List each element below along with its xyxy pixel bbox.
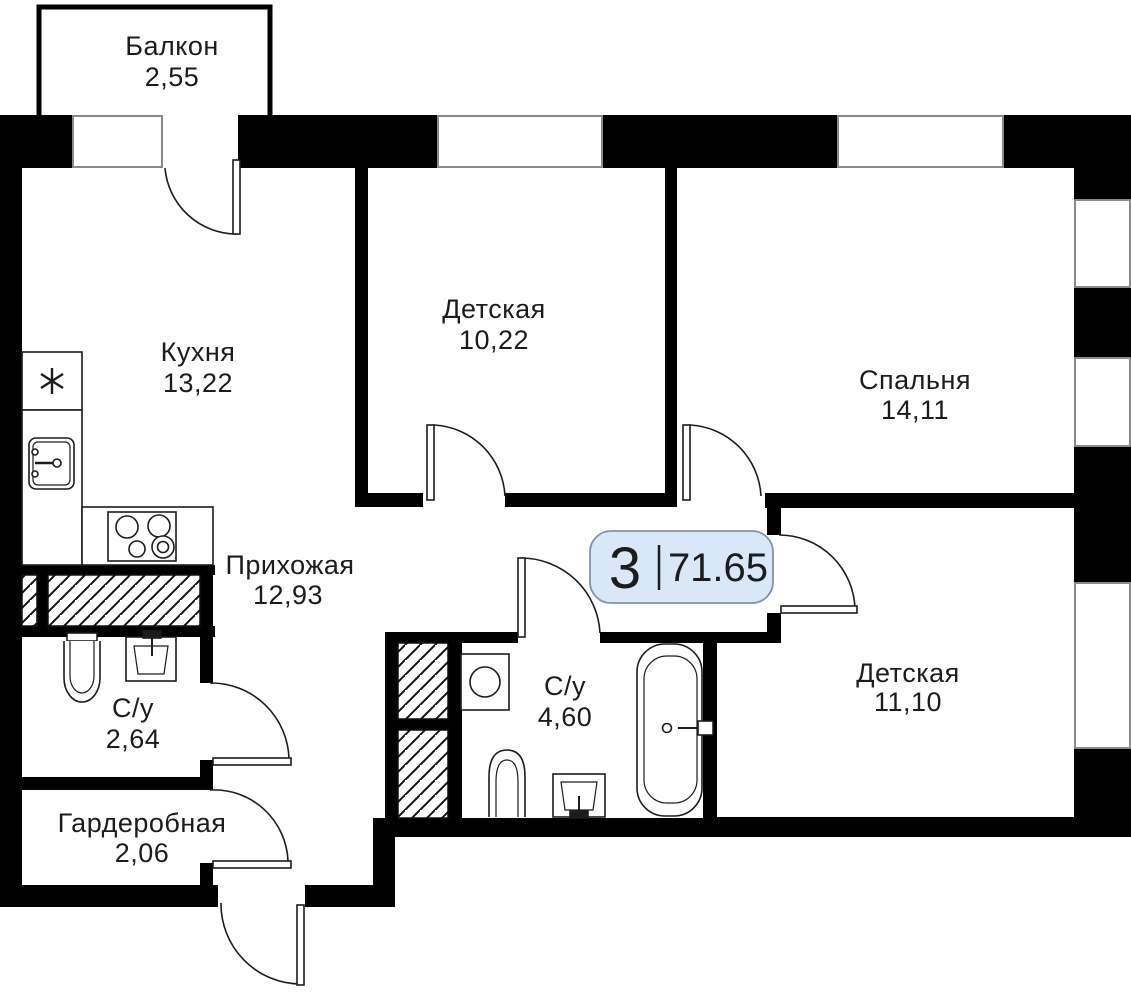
window-children-room-2: [1075, 583, 1130, 748]
label-bathroom: С/у: [544, 671, 586, 701]
badge-total-area: 71.65: [668, 546, 768, 590]
door-arc-wc: [210, 683, 289, 759]
badge-rooms-count: 3: [609, 536, 641, 601]
door-leaf-wardrobe: [213, 861, 291, 868]
area-children-1: 10,22: [459, 325, 529, 355]
area-children-2: 11,10: [874, 687, 942, 717]
window-bedroom-1: [838, 116, 1003, 167]
washbasin-icon-2: [553, 774, 605, 818]
area-hallway: 12,93: [253, 580, 323, 610]
door-arc-children-1: [434, 425, 505, 496]
floor-plan: Балкон 2,55 Кухня 13,22 Детская 10,22 Сп…: [0, 0, 1131, 1000]
bathtub-icon: [637, 644, 713, 816]
door-leaf-wc: [213, 758, 291, 765]
window-children-room-1: [438, 116, 602, 167]
window-bedroom-2: [1075, 200, 1130, 287]
window-bedroom-3: [1075, 358, 1130, 446]
door-leaf-children-2: [781, 606, 857, 613]
area-bedroom: 14,11: [881, 395, 949, 425]
label-bedroom: Спальня: [859, 365, 971, 395]
kitchen-sink-icon: [29, 438, 74, 489]
wc-fixtures: [64, 631, 176, 702]
toilet-icon-2: [489, 750, 525, 817]
area-kitchen: 13,22: [163, 368, 233, 398]
door-leaf-children-1: [427, 425, 434, 500]
windows: [73, 116, 1130, 748]
toilet-icon: [64, 633, 100, 702]
area-balcony: 2,55: [145, 62, 200, 92]
door-arc-entrance: [221, 903, 300, 984]
window-balcony: [73, 116, 162, 167]
label-hallway: Прихожая: [225, 550, 354, 580]
area-bathroom: 4,60: [538, 702, 593, 732]
label-wc: С/у: [112, 693, 154, 723]
door-arc-bedroom: [690, 425, 761, 496]
label-children-2: Детская: [856, 658, 960, 688]
washing-machine-icon: [461, 654, 509, 710]
apartment-badge: 3 71.65: [590, 531, 773, 603]
stove-icon: [108, 512, 176, 561]
label-kitchen: Кухня: [161, 337, 236, 367]
area-wc: 2,64: [106, 724, 161, 754]
door-arc-balcony: [165, 168, 236, 234]
door-arc-bathroom-main: [521, 558, 600, 633]
door-leaf-balcony: [233, 160, 240, 234]
label-children-1: Детская: [442, 294, 546, 324]
label-wardrobe: Гардеробная: [58, 808, 227, 838]
area-wardrobe: 2,06: [115, 838, 170, 868]
label-balcony: Балкон: [125, 31, 219, 61]
door-arc-children-2: [779, 535, 855, 609]
door-leaf-entrance: [297, 905, 304, 985]
washbasin-icon: [126, 631, 176, 681]
door-leaf-bathroom-main: [518, 558, 525, 637]
door-leaf-bedroom: [683, 425, 690, 500]
